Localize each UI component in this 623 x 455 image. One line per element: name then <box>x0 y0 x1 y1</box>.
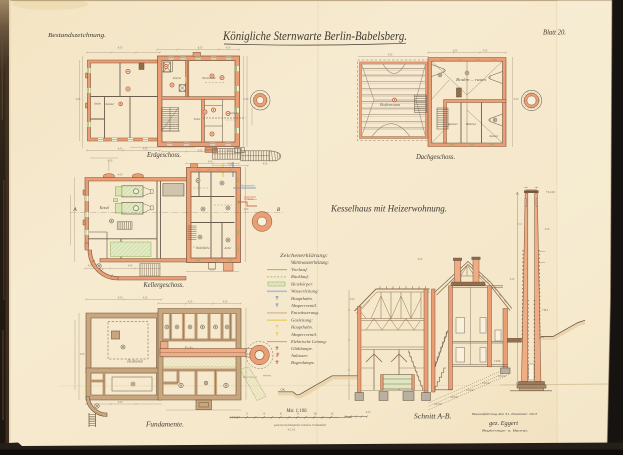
svg-text:Fundamente.: Fundamente. <box>145 421 184 429</box>
svg-text:Bauausführung den 31. Dezember: Bauausführung den 31. Dezember 1913 <box>472 412 538 416</box>
svg-text:4.50: 4.50 <box>483 50 488 53</box>
svg-text:Dachgeschoss.: Dachgeschoss. <box>415 153 455 161</box>
svg-text:OK.: OK. <box>280 388 285 392</box>
svg-text:4.50: 4.50 <box>453 50 458 53</box>
svg-text:4.50: 4.50 <box>118 297 123 300</box>
svg-text:4.50: 4.50 <box>118 401 123 404</box>
svg-text:Glühlampe.: Glühlampe. <box>291 346 313 351</box>
svg-text:Kammer: Kammer <box>105 103 116 106</box>
svg-text:4.50: 4.50 <box>514 98 519 101</box>
svg-text:Regierungs- u. Baurat.: Regierungs- u. Baurat. <box>481 429 529 433</box>
svg-text:4.50: 4.50 <box>118 148 123 151</box>
svg-text:Rauchkanal: Rauchkanal <box>242 375 257 379</box>
svg-text:4.50: 4.50 <box>128 265 133 268</box>
svg-text:Kammer: Kammer <box>447 123 459 126</box>
svg-text:4.50: 4.50 <box>198 150 203 153</box>
svg-text:4.50: 4.50 <box>208 161 213 164</box>
svg-text:4.50: 4.50 <box>366 411 371 414</box>
svg-text:4.50: 4.50 <box>108 160 113 163</box>
svg-text:Wohnstube: Wohnstube <box>202 76 216 80</box>
svg-text:4.50: 4.50 <box>118 47 123 50</box>
svg-text:Küche: Küche <box>172 76 182 80</box>
svg-text:Absperrventil.: Absperrventil. <box>290 332 317 337</box>
svg-text:Erdgeschoss.: Erdgeschoss. <box>146 151 181 159</box>
svg-text:Königliche Sternwarte Berlin-B: Königliche Sternwarte Berlin-Babelsberg. <box>222 29 407 43</box>
svg-text:Mädchen: Mädchen <box>465 123 477 126</box>
svg-text:Absperrventil.: Absperrventil. <box>290 303 317 308</box>
svg-text:Elektrische Leitung:: Elektrische Leitung: <box>290 339 328 344</box>
svg-text:4.50: 4.50 <box>226 47 231 50</box>
svg-text:Rücklauf.: Rücklauf. <box>290 274 309 279</box>
svg-text:Stube: Stube <box>194 117 201 121</box>
svg-text:4.50: 4.50 <box>510 278 515 281</box>
svg-text:4.50: 4.50 <box>228 163 233 166</box>
svg-text:4.50: 4.50 <box>244 208 249 211</box>
svg-text:Brunnenrohr: Brunnenrohr <box>241 185 255 188</box>
svg-text:Wasserleitung:: Wasserleitung: <box>291 289 320 294</box>
svg-text:Anschluss: Anschluss <box>246 198 257 201</box>
svg-text:4.50: 4.50 <box>545 228 550 231</box>
svg-text:A: A <box>72 207 77 213</box>
svg-text:4.50: 4.50 <box>188 301 193 304</box>
svg-text:4.50: 4.50 <box>247 353 252 356</box>
svg-text:Warmwasserheizung:: Warmwasserheizung: <box>291 261 329 266</box>
svg-text:Kesselhaus mit Heizerwohnung: Kesselhaus mit Heizerwohnung. <box>330 204 447 214</box>
svg-text:4.50: 4.50 <box>118 174 123 177</box>
svg-text:Entwässerung.: Entwässerung. <box>290 310 319 315</box>
svg-text:4.50: 4.50 <box>350 298 355 301</box>
svg-text:± 0.00: ± 0.00 <box>494 360 501 363</box>
svg-text:4.50: 4.50 <box>143 148 148 151</box>
svg-text:Blatt 20.: Blatt 20. <box>543 29 566 37</box>
svg-text:Keller: Keller <box>224 247 233 250</box>
svg-text:Heizkörper.: Heizkörper. <box>290 281 313 286</box>
svg-text:4.50: 4.50 <box>388 54 393 57</box>
svg-text:4.50: 4.50 <box>263 163 268 166</box>
svg-text:Waschküche: Waschküche <box>196 247 210 250</box>
svg-text:4.50: 4.50 <box>418 258 423 261</box>
svg-text:4.50: 4.50 <box>143 297 148 300</box>
svg-text:Schnitt A-B.: Schnitt A-B. <box>414 413 452 421</box>
svg-text:+30,5: +30,5 <box>542 309 549 312</box>
svg-text:4.50: 4.50 <box>80 353 85 356</box>
svg-text:4.50: 4.50 <box>223 301 228 304</box>
svg-text:Haupthahn.: Haupthahn. <box>290 296 313 301</box>
svg-text:4.50: 4.50 <box>76 98 81 101</box>
svg-text:Kellergeschoss.: Kellergeschoss. <box>143 281 185 289</box>
svg-text:Boden – raum: Boden – raum <box>456 77 486 82</box>
svg-text:4.50: 4.50 <box>88 265 93 268</box>
svg-text:Kessel: Kessel <box>99 206 109 210</box>
svg-text:Stube: Stube <box>94 102 101 106</box>
svg-text:4.2.14.: 4.2.14. <box>288 429 296 432</box>
svg-text:Bogenlampe.: Bogenlampe. <box>291 360 315 365</box>
svg-text:4.50: 4.50 <box>540 336 545 339</box>
svg-text:Bodenraum: Bodenraum <box>380 102 400 107</box>
svg-text:4.50: 4.50 <box>210 269 215 272</box>
svg-text:Heizkanal: Heizkanal <box>126 360 142 364</box>
svg-text:Kammer: Kammer <box>228 112 240 115</box>
svg-text:Gasleitung:: Gasleitung: <box>291 317 314 322</box>
svg-text:Kammer: Kammer <box>489 135 500 138</box>
svg-text:4.50: 4.50 <box>198 47 203 50</box>
svg-text:Vorlauf.: Vorlauf. <box>291 267 308 272</box>
svg-text:4.50: 4.50 <box>244 98 249 101</box>
svg-text:Bestandszeichnung.: Bestandszeichnung. <box>48 32 106 39</box>
svg-text:4.50: 4.50 <box>228 150 233 153</box>
svg-text:gez. Eggert: gez. Eggert <box>489 421 518 427</box>
svg-text:gezeichnet im Königlichen Gehe: gezeichnet im Königlichen Geheimen Civil… <box>274 423 326 427</box>
svg-text:Haupthahn.: Haupthahn. <box>290 325 313 330</box>
svg-text:Anlasser.: Anlasser. <box>290 353 308 358</box>
svg-text:Zeichenerklärung:: Zeichenerklärung: <box>280 253 328 259</box>
